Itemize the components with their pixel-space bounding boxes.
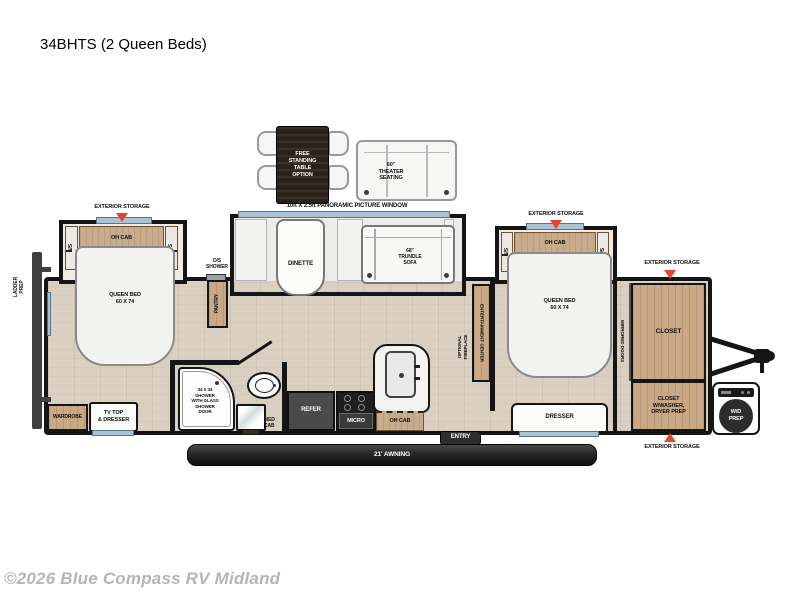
oh-cab-label: OH CAB xyxy=(111,235,132,242)
exterior-storage-label: EXTERIOR STORAGE xyxy=(634,444,710,451)
dinette-label: DINETTE xyxy=(288,261,313,269)
faucet-handle-icon xyxy=(414,377,420,380)
bumper-mount xyxy=(42,397,51,402)
burner-icon xyxy=(358,404,365,411)
dining-chair xyxy=(328,165,349,190)
panoramic-window-label: 10ft X 2.5ft PANORAMIC PICTURE WINDOW xyxy=(262,203,432,211)
optional-fireplace-label: OPTIONAL FIREPLACE xyxy=(457,335,468,360)
theater-seat-back-line xyxy=(364,152,449,153)
theater-seat-divider xyxy=(426,145,428,197)
exterior-storage-arrow-icon xyxy=(664,433,676,442)
sofa-leg-icon xyxy=(367,273,372,278)
exterior-storage-arrow-icon xyxy=(550,220,562,229)
refrigerator: REFER xyxy=(287,391,335,431)
shower-label: 34 X 34 SHOWER WITH GLASS SHOWER DOOR xyxy=(191,387,218,415)
vanity-base xyxy=(242,429,260,435)
rear-window xyxy=(47,292,51,336)
toilet-bowl xyxy=(255,378,274,393)
wd-control-panel xyxy=(718,388,754,397)
closet-washer-dryer: CLOSET W/WASHER, DRYER PREP xyxy=(631,381,706,431)
oh-cab-label: OH CAB xyxy=(544,240,565,247)
theater-seating-label: 60" THEATER SEATING xyxy=(379,162,404,183)
kitchen-counter xyxy=(373,344,430,413)
dresser: DRESSER xyxy=(511,403,608,433)
recliner-dot-icon xyxy=(364,190,369,195)
exterior-storage-arrow-icon xyxy=(664,270,676,279)
shower-label-wrap: 34 X 34 SHOWER WITH GLASS SHOWER DOOR xyxy=(181,377,229,425)
slide-window-panel xyxy=(337,219,363,281)
closet-washer-label: CLOSET W/WASHER, DRYER PREP xyxy=(651,396,686,417)
faucet-handle-icon xyxy=(414,365,420,368)
wd-door: W/D PREP xyxy=(719,399,753,433)
dining-chair xyxy=(257,131,278,156)
wd-knob-icon xyxy=(747,391,750,394)
ladder-prep-label: LADDER PREP xyxy=(13,277,26,297)
awning-label: 21' AWNING xyxy=(374,451,410,459)
bathroom-wall-top xyxy=(175,360,239,365)
wardrobe: WARDROBE xyxy=(47,404,88,431)
recliner-dot-icon xyxy=(444,190,449,195)
panoramic-window-strip xyxy=(238,211,450,218)
exterior-storage-label: EXTERIOR STORAGE xyxy=(634,260,710,267)
sofa-leg-icon xyxy=(444,273,449,278)
page-title: 34BHTS (2 Queen Beds) xyxy=(40,36,207,53)
kitchen-sink xyxy=(385,351,416,398)
closet: CLOSET xyxy=(631,283,706,381)
queen-bed-1: QUEEN BED 60 X 74 xyxy=(75,246,175,366)
trundle-sofa-label: 68" TRUNDLE SOFA xyxy=(398,248,421,267)
overhead-cabinet-bed2: OH CAB xyxy=(514,232,596,254)
mirrored-doors-label: MIRRORED DOORS xyxy=(619,320,625,362)
wd-prep-label: W/D PREP xyxy=(729,409,744,423)
queen-bed-label: QUEEN BED 60 X 74 xyxy=(109,292,141,306)
fireplace-label-wrap: OPTIONAL FIREPLACE xyxy=(446,326,480,368)
hitch-icon xyxy=(708,330,778,382)
dining-chair xyxy=(257,165,278,190)
bedroom2-bottom-window xyxy=(519,431,599,437)
refer-label: REFER xyxy=(301,407,321,415)
tv-top-dresser: TV TOP & DRESSER xyxy=(89,402,138,432)
bumper-mount xyxy=(42,267,51,272)
pantry: PANTRY xyxy=(207,280,228,328)
toilet xyxy=(247,372,281,399)
microwave: MICRO xyxy=(339,413,373,429)
bedroom1-bottom-window xyxy=(92,430,134,436)
exterior-storage-label: EXTERIOR STORAGE xyxy=(516,211,596,218)
burner-icon xyxy=(344,404,351,411)
sofa-arm-line xyxy=(374,229,376,280)
theater-seating-label-wrap: 60" THEATER SEATING xyxy=(366,154,416,190)
micro-label: MICRO xyxy=(347,418,365,425)
sofa-arm-line xyxy=(441,229,443,280)
dining-chair xyxy=(328,131,349,156)
range-unit: MICRO xyxy=(336,391,376,431)
burner-icon xyxy=(358,395,365,402)
slide-window-panel xyxy=(235,219,267,281)
toilet-flush-icon xyxy=(273,384,276,387)
exterior-storage-label: EXTERIOR STORAGE xyxy=(77,204,167,211)
oh-cab-label: OH CAB xyxy=(389,418,410,425)
copyright-text: ©2026 Blue Compass RV Midland xyxy=(4,569,280,589)
sofa-label-wrap: 68" TRUNDLE SOFA xyxy=(385,239,435,275)
dinette-table: DINETTE xyxy=(276,219,325,296)
faucet-icon xyxy=(399,373,404,378)
entry-label: ENTRY xyxy=(451,434,471,442)
wd-prep-unit: W/D PREP xyxy=(712,382,760,435)
awning-bar: 21' AWNING xyxy=(187,444,597,466)
sofa-back-line xyxy=(365,237,451,238)
shower: 34 X 34 SHOWER WITH GLASS SHOWER DOOR xyxy=(178,367,235,431)
exterior-storage-arrow-icon xyxy=(116,213,128,222)
bathroom-wall-left xyxy=(170,360,175,432)
dresser-label: DRESSER xyxy=(545,414,573,422)
closet-label: CLOSET xyxy=(656,328,682,336)
mirrored-doors-wrap: MIRRORED DOORS xyxy=(616,295,628,387)
queen-bed-2: QUEEN BED 60 X 74 xyxy=(507,252,612,378)
free-standing-table: FREE STANDING TABLE OPTION xyxy=(276,126,329,204)
overhead-cabinet-kitchen: OH CAB xyxy=(376,411,424,431)
wardrobe-label: WARDROBE xyxy=(53,414,82,420)
trundle-sofa: 68" TRUNDLE SOFA xyxy=(361,225,455,284)
entry-tab: ENTRY xyxy=(440,431,481,445)
ladder-prep-wrap: LADDER PREP xyxy=(4,267,34,307)
pantry-label: PANTRY xyxy=(214,294,220,313)
queen-bed-label: QUEEN BED 60 X 74 xyxy=(544,298,576,312)
tv-top-dresser-label: TV TOP & DRESSER xyxy=(98,410,129,424)
vanity-sink xyxy=(236,404,266,431)
wd-display-icon xyxy=(721,391,731,394)
floorplan-page: 34BHTS (2 Queen Beds) FREE STANDING TABL… xyxy=(0,0,800,600)
wd-knob-icon xyxy=(741,391,744,394)
theater-seating: 60" THEATER SEATING xyxy=(356,140,457,201)
burner-icon xyxy=(344,395,351,402)
free-standing-table-label: FREE STANDING TABLE OPTION xyxy=(289,151,317,179)
